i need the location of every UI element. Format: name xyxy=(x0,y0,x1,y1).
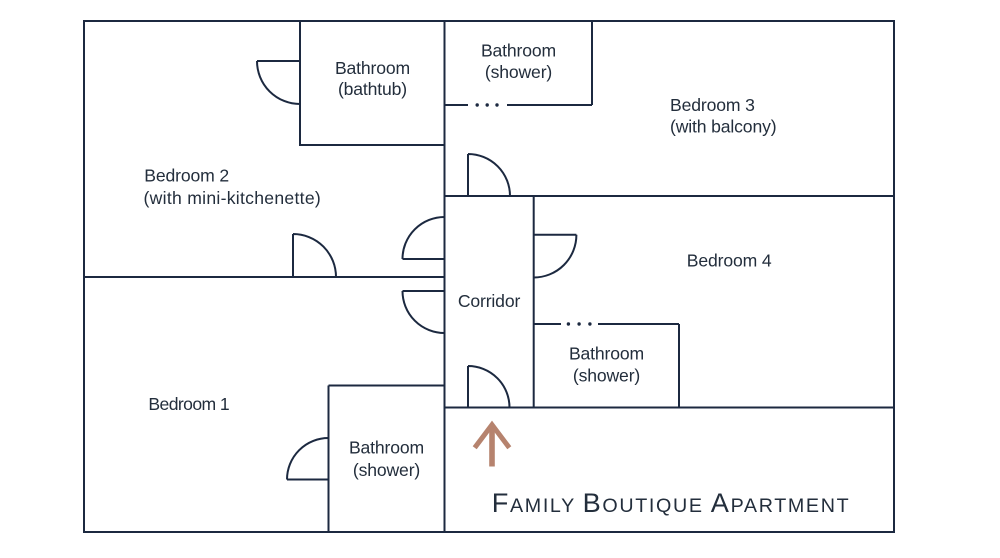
svg-text:(with balcony): (with balcony) xyxy=(670,116,776,136)
svg-text:Bedroom 1: Bedroom 1 xyxy=(148,394,229,414)
svg-text:Bedroom 4: Bedroom 4 xyxy=(687,250,772,270)
svg-text:Bathroom: Bathroom xyxy=(335,58,410,78)
svg-text:(bathtub): (bathtub) xyxy=(338,79,407,99)
svg-text:(shower): (shower) xyxy=(573,366,640,386)
svg-text:(shower): (shower) xyxy=(353,460,420,480)
svg-text:Bedroom 3: Bedroom 3 xyxy=(670,95,755,115)
svg-text:Bathroom: Bathroom xyxy=(349,437,424,457)
svg-text:Bedroom 2: Bedroom 2 xyxy=(144,165,229,185)
svg-text:(shower): (shower) xyxy=(485,62,552,82)
svg-text:Bathroom: Bathroom xyxy=(481,41,556,61)
svg-text:Corridor: Corridor xyxy=(458,291,521,311)
svg-text:Bathroom: Bathroom xyxy=(569,344,644,364)
svg-text:(with mini-kitchenette): (with mini-kitchenette) xyxy=(144,188,322,208)
